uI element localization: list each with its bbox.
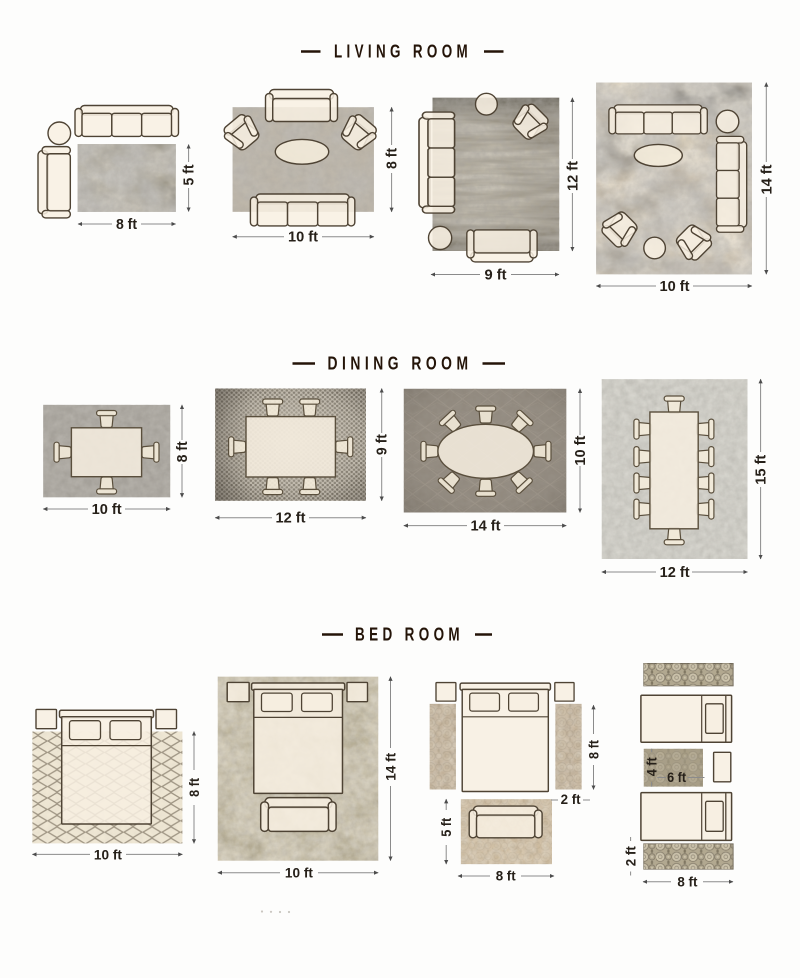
svg-text:9 ft: 9 ft bbox=[374, 434, 391, 455]
svg-text:LIVING ROOM: LIVING ROOM bbox=[334, 41, 472, 62]
svg-text:8 ft: 8 ft bbox=[174, 441, 191, 462]
svg-text:8 ft: 8 ft bbox=[677, 874, 697, 889]
svg-text:12 ft: 12 ft bbox=[564, 161, 581, 191]
svg-text:10 ft: 10 ft bbox=[94, 847, 123, 862]
svg-text:14 ft: 14 ft bbox=[471, 518, 501, 535]
svg-text:15 ft: 15 ft bbox=[753, 455, 770, 485]
svg-text:2 ft: 2 ft bbox=[624, 846, 639, 866]
svg-text:8 ft: 8 ft bbox=[384, 148, 401, 169]
svg-text:DINING ROOM: DINING ROOM bbox=[328, 353, 473, 374]
svg-text:BED ROOM: BED ROOM bbox=[355, 624, 464, 645]
svg-text:12 ft: 12 ft bbox=[660, 564, 690, 581]
svg-text:10 ft: 10 ft bbox=[92, 501, 122, 518]
svg-text:14 ft: 14 ft bbox=[758, 164, 775, 194]
svg-text:4 ft: 4 ft bbox=[645, 757, 660, 776]
svg-text:5 ft: 5 ft bbox=[181, 164, 198, 185]
svg-text:10 ft: 10 ft bbox=[572, 436, 589, 466]
svg-text:6 ft: 6 ft bbox=[667, 770, 686, 785]
svg-text:5 ft: 5 ft bbox=[439, 817, 454, 836]
svg-text:10 ft: 10 ft bbox=[288, 229, 318, 246]
svg-text:8 ft: 8 ft bbox=[587, 740, 602, 759]
svg-text:2 ft: 2 ft bbox=[561, 792, 581, 807]
svg-text:10 ft: 10 ft bbox=[660, 278, 690, 295]
svg-text:12 ft: 12 ft bbox=[276, 510, 306, 527]
svg-text:8 ft: 8 ft bbox=[187, 777, 202, 796]
svg-text:8 ft: 8 ft bbox=[116, 216, 137, 233]
svg-text:14 ft: 14 ft bbox=[384, 752, 399, 781]
svg-text:8 ft: 8 ft bbox=[496, 869, 516, 884]
svg-text:9 ft: 9 ft bbox=[485, 267, 507, 284]
svg-text:10 ft: 10 ft bbox=[285, 866, 314, 881]
